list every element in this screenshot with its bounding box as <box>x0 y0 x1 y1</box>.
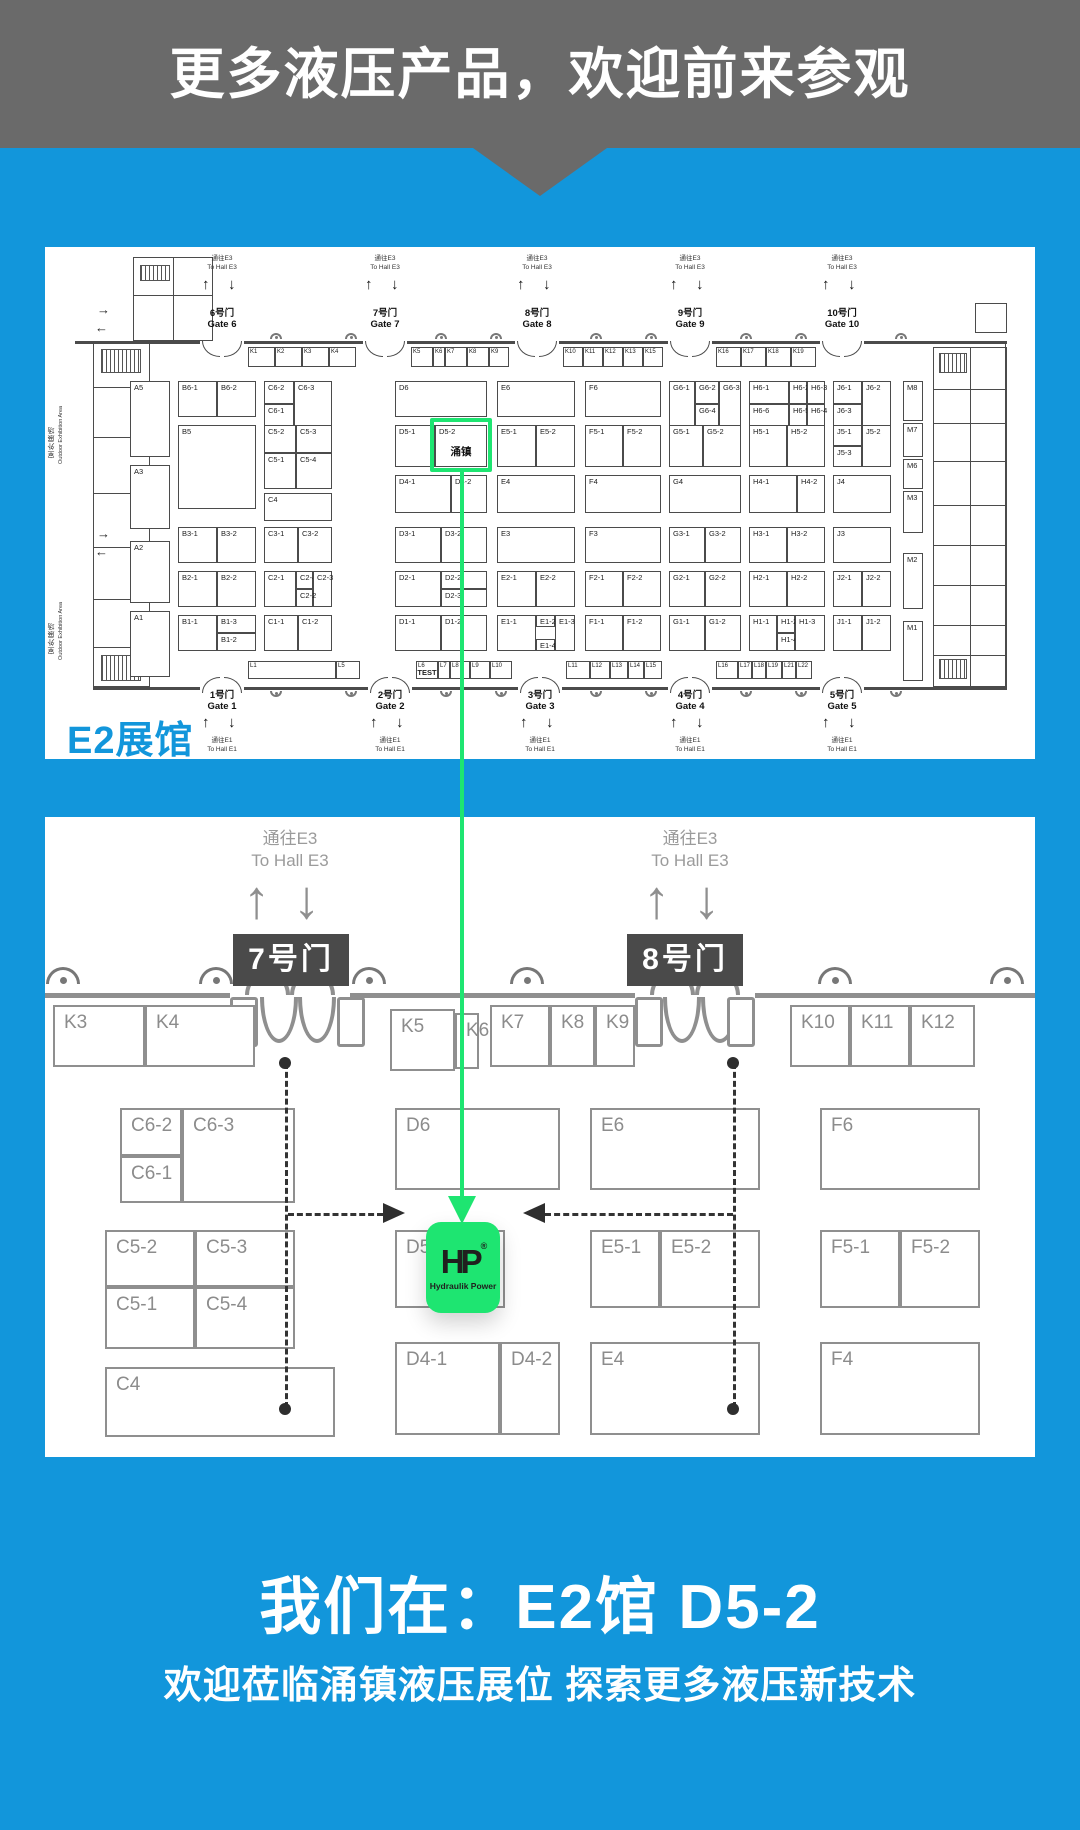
route-line <box>460 472 464 1198</box>
booth-K6: K6 <box>455 1013 479 1069</box>
booth-K9: K9 <box>595 1005 635 1067</box>
booth-B2-2: B2-2 <box>217 571 256 607</box>
label-通往E3: 通往E3 <box>190 255 254 263</box>
booth-F5-2: F5-2 <box>900 1230 980 1308</box>
booth-H6-6: H6-6 <box>749 404 789 427</box>
map-bl <box>975 303 1007 333</box>
map-st <box>939 353 967 373</box>
booth-L11: L11 <box>566 661 590 679</box>
booth-D6: D6 <box>395 381 487 417</box>
map-cam <box>990 967 1024 984</box>
booth-J1-2: J1-2 <box>862 615 891 651</box>
booth-J5-1: J5-1 <box>833 425 862 446</box>
booth-K5: K5 <box>411 347 433 367</box>
label-To Hall E3: To Hall E3 <box>353 264 417 272</box>
map-hl <box>412 687 518 690</box>
booth-G6-1: G6-1 <box>669 381 695 427</box>
booth-G2-2: G2-2 <box>705 571 741 607</box>
booth-J3: J3 <box>833 527 891 563</box>
booth-J6-1: J6-1 <box>833 381 862 404</box>
route-dashed-right-horizontal <box>545 1213 733 1216</box>
label-Gate 9: Gate 9 <box>658 320 722 330</box>
booth-L9: L9 <box>470 661 490 679</box>
label-通往E3: 通往E3 <box>353 255 417 263</box>
booth-K13: K13 <box>623 347 643 367</box>
booth-H1-3: H1-3 <box>795 615 825 651</box>
registered-mark-icon: ® <box>481 1241 488 1251</box>
booth-C2-2: C2-2 <box>296 589 313 607</box>
down-arrow-icon: ↓ <box>293 873 320 927</box>
down-arrow-icon: ↓ <box>848 715 856 730</box>
label-Gate 5: Gate 5 <box>810 702 874 712</box>
label-To Hall E1: To Hall E1 <box>358 746 422 754</box>
map-hl <box>755 993 1035 998</box>
booth-L14: L14 <box>628 661 644 679</box>
route-dot <box>279 1403 291 1415</box>
route-dashed-left-horizontal <box>288 1213 383 1216</box>
map-hl <box>712 687 820 690</box>
booth-E1-2: E1-2 <box>536 615 555 627</box>
map-st <box>140 265 170 281</box>
map-arc <box>392 677 410 693</box>
map-hl <box>562 687 668 690</box>
booth-F1-2: F1-2 <box>623 615 661 651</box>
booth-E5-1: E5-1 <box>590 1230 660 1308</box>
booth-B1-2: B1-2 <box>217 633 256 651</box>
map-hl <box>933 505 1007 506</box>
map-cam <box>510 967 544 984</box>
map-cam <box>590 691 602 697</box>
map-hl <box>45 993 230 998</box>
map-arc <box>822 341 840 357</box>
hall-name-label: E2展馆 <box>67 709 193 764</box>
outdoor-arrow-icon: ← <box>95 545 108 558</box>
booth-C4: C4 <box>264 493 332 521</box>
header-title: 更多液压产品，欢迎前来参观 <box>0 0 1080 148</box>
route-arrowhead-icon <box>448 1196 476 1224</box>
booth-C5-2: C5-2 <box>105 1230 195 1287</box>
map-hl <box>933 655 1007 656</box>
label-To Hall E1: To Hall E1 <box>190 746 254 754</box>
booth-L22: L22 <box>796 661 812 679</box>
label-Gate 8: Gate 8 <box>505 320 569 330</box>
booth-F6: F6 <box>820 1108 980 1190</box>
map-hl <box>933 389 1007 390</box>
map-arc <box>370 677 388 693</box>
booth-H4-1: H4-1 <box>749 475 797 513</box>
booth-K2: K2 <box>275 347 302 367</box>
map-cam <box>46 967 80 984</box>
map-arc <box>844 677 862 693</box>
booth-zoom-panel: 通往E3To Hall E3通往E3To Hall E3↑↓↑↓K3K4K5K6… <box>45 817 1035 1457</box>
map-arc <box>298 997 336 1043</box>
booth-F4: F4 <box>585 475 661 513</box>
booth-K19: K19 <box>791 347 816 367</box>
map-arc <box>365 341 383 357</box>
booth-L17: L17 <box>738 661 752 679</box>
booth-K8: K8 <box>550 1005 595 1067</box>
gate-2-label: 2号门 <box>358 691 422 701</box>
company-logo: HP® Hydraulik Power <box>426 1222 500 1313</box>
booth-H4-2: H4-2 <box>797 475 825 513</box>
booth-D3-1: D3-1 <box>395 527 441 563</box>
booth-K17: K17 <box>741 347 766 367</box>
booth-D2-2: D2-2 <box>441 571 487 589</box>
booth-E1-4: E1-4 <box>536 639 555 651</box>
booth-L12: L12 <box>590 661 610 679</box>
map-arc <box>224 341 242 357</box>
booth-H3-1: H3-1 <box>749 527 787 563</box>
down-arrow-icon: ↓ <box>228 715 236 730</box>
map-cam <box>795 691 807 697</box>
map-hl <box>559 341 668 344</box>
map-cam <box>590 333 602 339</box>
gate-8-label: 8号门 <box>505 309 569 319</box>
up-arrow-icon: ↑ <box>517 277 525 292</box>
gate-8-badge: 8号门 <box>627 934 743 986</box>
booth-zoom-map: 通往E3To Hall E3通往E3To Hall E3↑↓↑↓K3K4K5K6… <box>45 817 1035 1457</box>
booth-F1-1: F1-1 <box>585 615 623 651</box>
up-arrow-icon: ↑ <box>202 277 210 292</box>
map-cam <box>890 691 902 697</box>
label-通往E3: 通往E3 <box>658 255 722 263</box>
to-hall-e3-label: 通往E3 <box>625 829 755 849</box>
booth-G6-2: G6-2 <box>695 381 719 404</box>
map-cam <box>270 333 282 339</box>
booth-H1-1: H1-1 <box>749 615 777 651</box>
promo-poster: { "page": {"bg": "#1296DB", "accent_gree… <box>0 0 1080 1830</box>
footer-subtitle: 欢迎莅临涌镇液压展位 探索更多液压新技术 <box>0 1654 1080 1709</box>
map-arc <box>387 341 405 357</box>
booth-C2-1: C2-1 <box>264 571 296 607</box>
booth-F5-2: F5-2 <box>623 425 661 467</box>
booth-G3-2: G3-2 <box>705 527 741 563</box>
label-通往E3: 通往E3 <box>810 255 874 263</box>
gate-7-label: 7号门 <box>353 309 417 319</box>
booth-H6-4: H6-4 <box>807 404 825 427</box>
booth-A1: A1 <box>130 611 170 677</box>
map-cam <box>495 691 507 697</box>
booth-F2-1: F2-1 <box>585 571 623 607</box>
booth-H3-2: H3-2 <box>787 527 825 563</box>
booth-K3: K3 <box>53 1005 145 1067</box>
map-arc <box>670 341 688 357</box>
down-arrow-icon: ↓ <box>696 715 704 730</box>
to-hall-e3-label: 通往E3 <box>225 829 355 849</box>
booth-K4: K4 <box>145 1005 255 1067</box>
booth-K18: K18 <box>766 347 791 367</box>
map-cam <box>352 967 386 984</box>
gate-3-label: 3号门 <box>508 691 572 701</box>
up-arrow-icon: ↑ <box>822 277 830 292</box>
booth-D4-1: D4-1 <box>395 475 451 513</box>
up-arrow-icon: ↑ <box>243 873 270 927</box>
logo-mark: HP® <box>441 1245 485 1278</box>
booth-J5-3: J5-3 <box>833 446 862 467</box>
map-hl <box>933 625 1007 626</box>
down-arrow-icon: ↓ <box>228 277 236 292</box>
booth-L19: L19 <box>766 661 782 679</box>
label-Gate 4: Gate 4 <box>658 702 722 712</box>
booth-K16: K16 <box>716 347 741 367</box>
booth-C6-1: C6-1 <box>120 1156 182 1203</box>
booth-C3-2: C3-2 <box>298 527 332 563</box>
header-notch-triangle <box>473 148 607 196</box>
map-cam <box>645 691 657 697</box>
gate-4-label: 4号门 <box>658 691 722 701</box>
hall-overview-map: 室外展场Outdoor Exhibition Area室外展场Outdoor E… <box>45 247 1035 759</box>
booth-M8: M8 <box>903 381 923 421</box>
booth-E1-3: E1-3 <box>555 615 575 651</box>
label-通往E1: 通往E1 <box>508 737 572 745</box>
map-st <box>939 659 967 679</box>
booth-E3: E3 <box>497 527 575 563</box>
booth-C5-1: C5-1 <box>264 453 296 489</box>
up-arrow-icon: ↑ <box>670 715 678 730</box>
up-arrow-icon: ↑ <box>370 715 378 730</box>
booth-E4: E4 <box>497 475 575 513</box>
booth-E2-2: E2-2 <box>536 571 575 607</box>
booth-K6: K6 <box>433 347 445 367</box>
booth-C6-3: C6-3 <box>182 1108 295 1203</box>
booth-D6: D6 <box>395 1108 560 1190</box>
up-arrow-icon: ↑ <box>822 715 830 730</box>
label-To Hall E1: To Hall E1 <box>810 746 874 754</box>
booth-J2-2: J2-2 <box>862 571 891 607</box>
booth-K1: K1 <box>248 347 275 367</box>
outdoor-area-label-en: Outdoor Exhibition Area <box>58 339 67 464</box>
booth-D4-2: D4-2 <box>500 1342 560 1435</box>
outdoor-arrow-icon: → <box>97 527 110 540</box>
map-cam <box>490 333 502 339</box>
booth-H6-3: H6-3 <box>807 381 825 404</box>
label-通往E1: 通往E1 <box>810 737 874 745</box>
booth-J4: J4 <box>833 475 891 513</box>
booth-G1-1: G1-1 <box>669 615 705 651</box>
label-通往E1: 通往E1 <box>658 737 722 745</box>
route-arrow-left-icon <box>523 1203 545 1223</box>
booth-M2: M2 <box>903 553 923 609</box>
booth-H1-2: H1-2 <box>777 615 795 633</box>
booth-G5-1: G5-1 <box>669 425 703 467</box>
map-hl <box>933 461 1007 462</box>
map-arc <box>202 677 220 693</box>
label-To Hall E3: To Hall E3 <box>190 264 254 272</box>
label-Gate 10: Gate 10 <box>810 320 874 330</box>
logo-name: Hydraulik Power <box>430 1281 497 1291</box>
booth-E1-1: E1-1 <box>497 615 536 651</box>
booth-K11: K11 <box>850 1005 910 1067</box>
booth-K3: K3 <box>302 347 329 367</box>
booth-C1-1: C1-1 <box>264 615 298 651</box>
booth-K10: K10 <box>563 347 583 367</box>
booth-F6: F6 <box>585 381 661 417</box>
booth-L10: L10 <box>490 661 512 679</box>
booth-B6-2: B6-2 <box>217 381 256 417</box>
booth-G4: G4 <box>669 475 741 513</box>
booth-D4-2: D4-2 <box>451 475 487 513</box>
booth-C5-2: C5-2 <box>264 425 296 453</box>
map-pst <box>635 997 663 1047</box>
booth-C3-1: C3-1 <box>264 527 298 563</box>
booth-M7: M7 <box>903 423 923 457</box>
booth-L15: L15 <box>644 661 662 679</box>
booth-D1-1: D1-1 <box>395 615 441 651</box>
booth-A5: A5 <box>130 381 170 457</box>
booth-J1-1: J1-1 <box>833 615 862 651</box>
label-Gate 6: Gate 6 <box>190 320 254 330</box>
booth-M1: M1 <box>903 621 923 681</box>
booth-D3-2: D3-2 <box>441 527 487 563</box>
booth-C6-3: C6-3 <box>294 381 332 427</box>
booth-B5: B5 <box>178 425 256 509</box>
map-cam <box>345 691 357 697</box>
booth-K7: K7 <box>445 347 467 367</box>
down-arrow-icon: ↓ <box>848 277 856 292</box>
booth-F4: F4 <box>820 1342 980 1435</box>
booth-E2-1: E2-1 <box>497 571 536 607</box>
gate-9-label: 9号门 <box>658 309 722 319</box>
gate-1-label: 1号门 <box>190 691 254 701</box>
booth-D5-1: D5-1 <box>395 425 435 467</box>
booth-K9: K9 <box>489 347 509 367</box>
down-arrow-icon: ↓ <box>546 715 554 730</box>
map-cam <box>440 691 452 697</box>
label-To Hall E3: To Hall E3 <box>658 264 722 272</box>
outdoor-arrow-icon: → <box>97 303 110 316</box>
up-arrow-icon: ↑ <box>365 277 373 292</box>
map-arc <box>844 341 862 357</box>
label-通往E3: 通往E3 <box>505 255 569 263</box>
label-Gate 2: Gate 2 <box>358 702 422 712</box>
map-arc <box>520 677 538 693</box>
booth-J6-2: J6-2 <box>862 381 891 427</box>
route-dot <box>727 1057 739 1069</box>
route-dot <box>727 1403 739 1415</box>
booth-D1-2: D1-2 <box>441 615 487 651</box>
booth-L21: L21 <box>782 661 796 679</box>
booth-A2: A2 <box>130 541 170 603</box>
booth-L13: L13 <box>610 661 628 679</box>
hall-overview-panel: 室外展场Outdoor Exhibition Area室外展场Outdoor E… <box>45 247 1035 759</box>
gate-10-label: 10号门 <box>810 309 874 319</box>
up-arrow-icon: ↑ <box>520 715 528 730</box>
booth-G2-1: G2-1 <box>669 571 705 607</box>
booth-J2-1: J2-1 <box>833 571 862 607</box>
map-cam <box>645 333 657 339</box>
booth-J5-2: J5-2 <box>862 425 891 467</box>
down-arrow-icon: ↓ <box>693 873 720 927</box>
map-arc <box>202 341 220 357</box>
booth-G6-3: G6-3 <box>719 381 741 427</box>
booth-E6: E6 <box>497 381 575 417</box>
map-cam <box>270 691 282 697</box>
booth-B1-3: B1-3 <box>217 615 256 633</box>
map-arc <box>692 341 710 357</box>
booth-C2-4: C2-4 <box>296 571 313 589</box>
map-hl <box>933 423 1007 424</box>
map-hl <box>864 341 1007 344</box>
header-banner: 更多液压产品，欢迎前来参观 <box>0 0 1080 148</box>
to-hall-e3-label: To Hall E3 <box>225 851 355 871</box>
map-arc <box>822 677 840 693</box>
map-hl <box>933 545 1007 546</box>
label-To Hall E3: To Hall E3 <box>810 264 874 272</box>
map-hl <box>244 687 368 690</box>
map-arc <box>224 677 242 693</box>
booth-J6-3: J6-3 <box>833 404 862 427</box>
map-arc <box>663 997 701 1043</box>
map-hl <box>93 687 200 690</box>
outdoor-area-label-cn: 室外展场 <box>47 539 57 654</box>
gate-5-label: 5号门 <box>810 691 874 701</box>
booth-K5: K5 <box>390 1009 455 1071</box>
booth-H6-5: H6-5 <box>789 404 807 427</box>
map-arc <box>539 341 557 357</box>
booth-K4: K4 <box>329 347 356 367</box>
booth-C5-3: C5-3 <box>296 425 332 453</box>
booth-L1: L1 <box>248 661 336 679</box>
booth-B2-1: B2-1 <box>178 571 217 607</box>
label-To Hall E3: To Hall E3 <box>505 264 569 272</box>
route-dashed-right <box>733 1063 736 1408</box>
outdoor-area-label-en: Outdoor Exhibition Area <box>58 535 67 660</box>
map-hl <box>75 341 200 344</box>
booth-M6: M6 <box>903 459 923 489</box>
booth-K8: K8 <box>467 347 489 367</box>
booth-E5-2: E5-2 <box>660 1230 760 1308</box>
map-arc <box>670 677 688 693</box>
booth-F5-1: F5-1 <box>820 1230 900 1308</box>
down-arrow-icon: ↓ <box>543 277 551 292</box>
booth-H2-2: H2-2 <box>787 571 825 607</box>
map-hl <box>133 295 213 296</box>
booth-L18: L18 <box>752 661 766 679</box>
outdoor-arrow-icon: ← <box>95 321 108 334</box>
map-hl <box>712 341 820 344</box>
map-cam <box>435 333 447 339</box>
label-通往E1: 通往E1 <box>190 737 254 745</box>
booth-B3-2: B3-2 <box>217 527 256 563</box>
booth-G1-2: G1-2 <box>705 615 741 651</box>
booth-C6-2: C6-2 <box>120 1108 182 1156</box>
map-pst <box>337 997 365 1047</box>
booth-D2-3: D2-3 <box>441 589 487 607</box>
map-vl <box>173 257 174 341</box>
booth-C5-1: C5-1 <box>105 1287 195 1349</box>
booth-B6-1: B6-1 <box>178 381 217 417</box>
booth-D2-1: D2-1 <box>395 571 441 607</box>
booth-A3: A3 <box>130 465 170 529</box>
booth-H6-2: H6-2 <box>789 381 807 404</box>
map-hl <box>933 585 1007 586</box>
booth-G6-4: G6-4 <box>695 404 719 427</box>
map-arc <box>542 677 560 693</box>
booth-K12: K12 <box>910 1005 975 1067</box>
map-vl <box>970 347 971 687</box>
booth-C5-4: C5-4 <box>195 1287 295 1349</box>
booth-C2-3: C2-3 <box>313 571 332 607</box>
booth-E5-1: E5-1 <box>497 425 536 467</box>
map-st <box>101 349 141 373</box>
map-hl <box>244 341 363 344</box>
booth-M3: M3 <box>903 491 923 533</box>
map-arc <box>517 341 535 357</box>
booth-G3-1: G3-1 <box>669 527 705 563</box>
map-hl <box>864 687 1007 690</box>
booth-C1-2: C1-2 <box>298 615 332 651</box>
highlight-booth-frame <box>430 418 492 472</box>
